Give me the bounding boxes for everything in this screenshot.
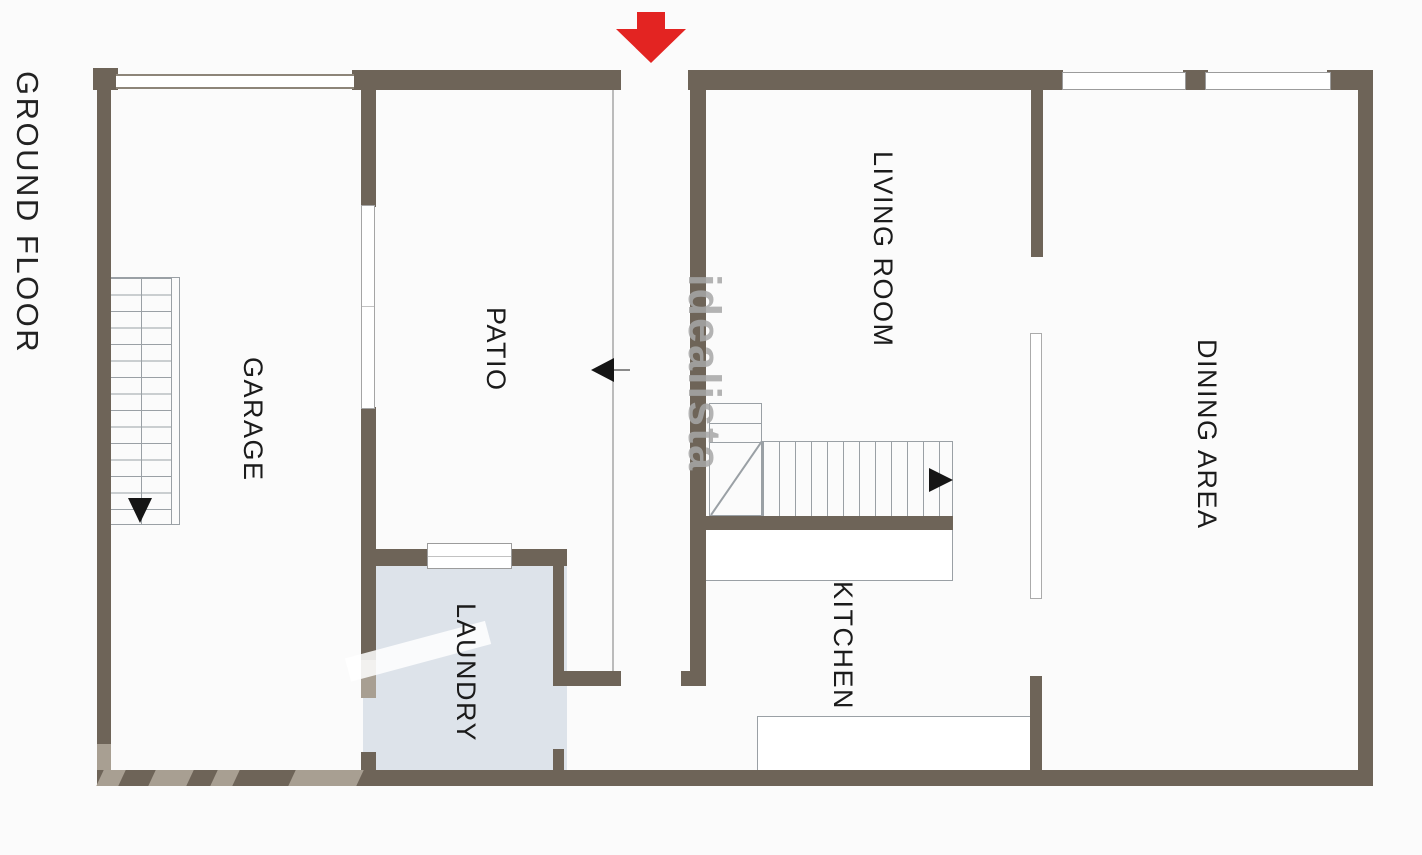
patio-entry-arrow-icon: [591, 358, 614, 382]
main-stairs-up-arrow-icon: [929, 468, 953, 492]
living-dining-door-panel: [1030, 333, 1042, 599]
wall-living-dining-divider: [1031, 82, 1043, 257]
dining-window-2: [1205, 72, 1331, 90]
wall-garage-patio-upper: [361, 85, 376, 207]
room-label-kitchen: KITCHEN: [829, 581, 856, 710]
dining-window-1: [1062, 72, 1186, 90]
garage-stair-divider: [141, 278, 142, 524]
room-label-laundry: LAUNDRY: [452, 603, 479, 742]
entrance-arrow-icon: [637, 12, 665, 30]
entry-direction-tick: [613, 369, 630, 371]
garage-stairs-down-arrow-icon: [128, 498, 152, 523]
page-title: GROUND FLOOR: [12, 71, 43, 354]
floor-plan: GROUND FLOOR GARAGE PATIO LIVING ROOM DI…: [0, 0, 1422, 855]
wall-top-patio: [352, 70, 621, 90]
wall-right-outer: [1358, 70, 1373, 786]
laundry-window: [427, 543, 512, 569]
wall-under-stairs: [701, 516, 953, 530]
watermark-swoosh-patch: [288, 770, 363, 786]
room-label-living-room: LIVING ROOM: [869, 151, 896, 348]
garage-door: [116, 74, 354, 89]
watermark-swoosh-patch: [148, 770, 193, 786]
wall-left-outer: [97, 68, 111, 786]
garage-staircase: [109, 277, 180, 525]
wall-laundry-right: [553, 549, 564, 673]
room-label-dining-area: DINING AREA: [1193, 339, 1220, 530]
laundry-window-mullion: [428, 556, 511, 557]
watermark-text: idealista: [682, 274, 727, 472]
kitchen-counter-top: [704, 528, 953, 581]
wall-laundry-right-stub: [553, 749, 564, 771]
wall-garage-patio-stub: [361, 752, 376, 772]
watermark-swoosh-patch: [97, 744, 111, 770]
room-label-patio: PATIO: [482, 307, 509, 392]
kitchen-counter-bottom: [757, 716, 1038, 772]
patio-window: [361, 205, 375, 409]
patio-window-mullion: [362, 306, 374, 307]
wall-top-living: [688, 70, 1063, 90]
entrance-arrow-head-icon: [616, 29, 686, 63]
main-staircase-run: [762, 441, 953, 517]
wall-hall-bottom: [553, 671, 621, 686]
wall-kitchen-dining-stub: [1030, 676, 1042, 772]
room-label-garage: GARAGE: [239, 357, 266, 482]
